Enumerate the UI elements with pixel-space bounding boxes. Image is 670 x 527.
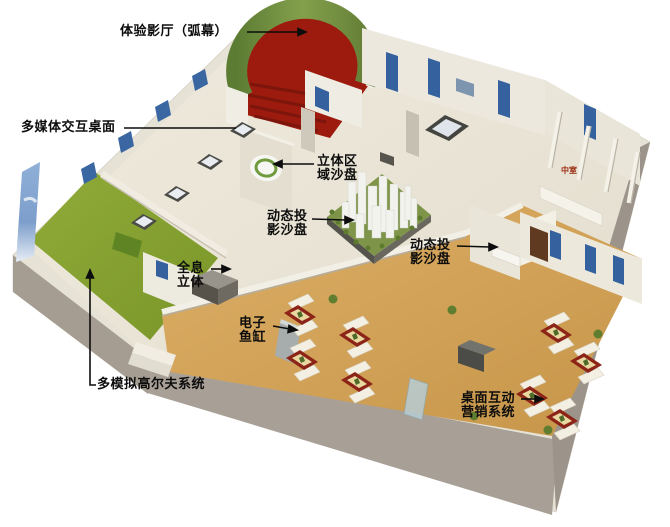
label-dynright-line1: 动态投 (410, 239, 451, 253)
label-dynamic-sand-right: 动态投 影沙盘 (410, 239, 451, 266)
label-dynleft-line1: 动态投 (267, 210, 308, 224)
label-hologram: 全息 立体 (177, 262, 204, 289)
label-multimedia-table: 多媒体交互桌面 (21, 121, 116, 135)
room-sign-text: 中室 (561, 166, 577, 175)
label-fish-line2: 鱼缸 (239, 331, 266, 345)
exhibition-hall-floorplan: 体验影厅（弧幕） 多媒体交互桌面 立体区 域沙盘 动态投 影沙盘 动态投 影沙盘… (0, 0, 670, 527)
label-stereo-zone: 立体区 域沙盘 (317, 155, 358, 182)
niche-picture (498, 80, 510, 118)
label-dynamic-sand-left: 动态投 影沙盘 (267, 210, 308, 237)
label-theater: 体验影厅（弧幕） (120, 25, 228, 39)
niche-picture (550, 230, 561, 260)
label-desktop-marketing: 桌面互动 营销系统 (461, 392, 515, 419)
label-fish-tank: 电子 鱼缸 (239, 317, 266, 344)
label-multimedia-text: 多媒体交互桌面 (21, 121, 116, 135)
label-golf-text: 多模拟高尔夫系统 (97, 378, 205, 392)
label-dynleft-line2: 影沙盘 (267, 224, 308, 238)
label-holo-line1: 全息 (177, 262, 204, 276)
label-stereo-line1: 立体区 (317, 155, 358, 169)
label-golf: 多模拟高尔夫系统 (97, 378, 205, 392)
label-holo-line2: 立体 (177, 276, 204, 290)
niche-picture (428, 58, 440, 98)
room-sign: 中室 (561, 167, 577, 175)
niche-picture (386, 52, 398, 92)
label-desktop-line1: 桌面互动 (461, 392, 515, 406)
label-desktop-line2: 营销系统 (461, 406, 515, 420)
label-stereo-line2: 域沙盘 (317, 169, 358, 183)
niche-picture (613, 255, 624, 285)
label-theater-text: 体验影厅（弧幕） (120, 25, 228, 39)
label-fish-line1: 电子 (239, 317, 266, 331)
floorplan-rendering (0, 0, 670, 527)
label-dynright-line2: 影沙盘 (410, 253, 451, 267)
niche-picture (585, 244, 596, 274)
